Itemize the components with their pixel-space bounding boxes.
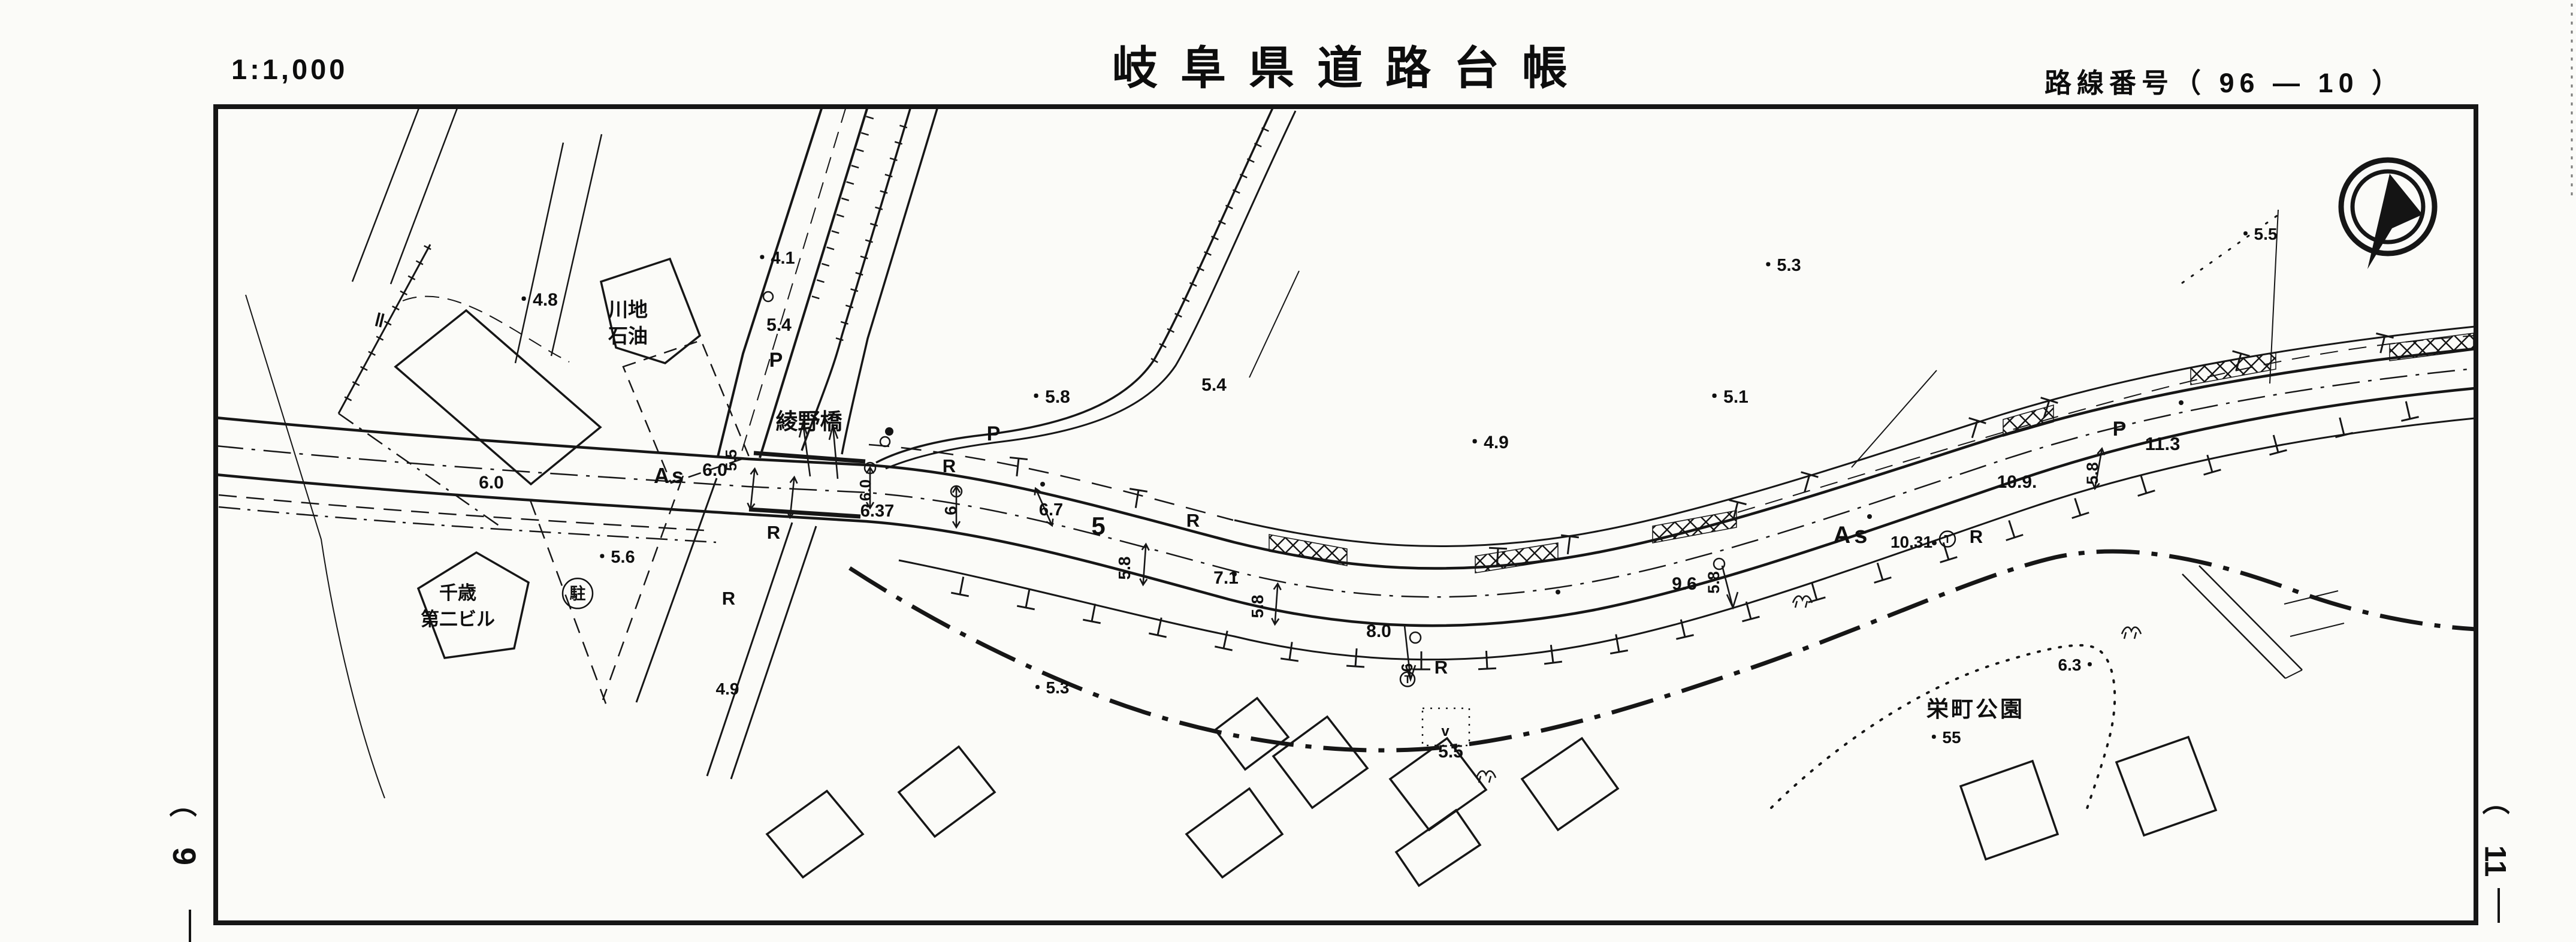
main-road [216, 327, 2475, 660]
map-label: R [1186, 510, 1200, 531]
map-label: P [987, 422, 1001, 445]
map-label: 5.5 [1438, 742, 1463, 762]
map-label: 7.1 [1213, 568, 1239, 588]
map-label: 5.8 [1115, 557, 1134, 580]
map-label: As [1833, 522, 1871, 548]
map-label: R [943, 455, 956, 476]
map-label: ・5.5 [2237, 225, 2278, 243]
map-label: 6.37 [860, 502, 894, 521]
map-label: ・5.6 [593, 548, 635, 567]
map-label: 石油 [608, 325, 648, 347]
map-label: 10.31 [1891, 533, 1932, 551]
map-label: P [2113, 418, 2127, 440]
map-label: 5.4 [1201, 375, 1227, 395]
map-label: 5.4 [766, 315, 792, 335]
map-labels-layer: ・4.8川地石油・4.15.4P綾野橋・5.85.4PR66.755.8R7.1… [373, 225, 2278, 762]
map-label: R [767, 522, 780, 543]
wall-hatch-bands [1269, 333, 2474, 573]
map-label: 第二ビル [421, 609, 495, 630]
boundaries [850, 551, 2476, 810]
map-label: ・5.1 [1705, 387, 1748, 407]
map-label: 6.0 [479, 473, 504, 493]
map-label: 駐 [570, 585, 586, 603]
map-label: 6.3・ [2058, 656, 2098, 674]
map-label: 5.5 [722, 449, 740, 471]
map-label: R [722, 588, 735, 609]
map-label: 千歳 [439, 582, 476, 603]
map-frame [216, 107, 2476, 923]
map-label: As [654, 463, 686, 488]
map-label: ・5.3 [1029, 678, 1070, 697]
map-label: 6.0 [856, 479, 874, 501]
map-label: ・5.8 [1027, 387, 1070, 407]
map-label: 6 [1398, 663, 1416, 672]
map-label: 10.9. [1997, 472, 2037, 492]
map-label: 6 [941, 506, 960, 515]
map-label: ・4.8 [515, 290, 558, 310]
map-label: P [769, 349, 783, 372]
map-label: 5.8 [1705, 571, 1723, 594]
map-label: 6.7 [1039, 500, 1063, 520]
map-label: T [1405, 674, 1411, 686]
map-label: 9.6 [1672, 574, 1697, 594]
map-label: v [1441, 723, 1449, 739]
map-label: ・4.9 [1466, 433, 1509, 452]
map-label: 5.8 [2083, 462, 2101, 485]
road-ledger-sheet: 1:1,000 岐阜県道路台帳 路線番号（ 96 — 10 ） （ 9 （ 11 [0, 0, 2576, 942]
river-and-channels [707, 107, 1295, 779]
north-arrow-icon [2341, 160, 2435, 269]
map-label: ・5.3 [1759, 256, 1801, 275]
map-label: 綾野橋 [776, 409, 843, 434]
map-label: 4.9 [716, 680, 739, 698]
map-label: 5.8 [1248, 595, 1267, 618]
map-canvas: ・4.8川地石油・4.15.4P綾野橋・5.85.4PR66.755.8R7.1… [0, 0, 2576, 942]
map-label: R [1970, 526, 1983, 547]
map-label: ・4.1 [753, 249, 795, 268]
buildings [395, 259, 2216, 886]
map-label: ・55 [1925, 728, 1961, 747]
map-label: T [1944, 533, 1951, 545]
map-label: R [1435, 657, 1448, 678]
map-label: 5 [1091, 512, 1105, 540]
map-label: 11.3 [2145, 433, 2181, 454]
map-label: 川地 [608, 298, 648, 321]
map-label: 栄町公園 [1926, 697, 2025, 721]
east-lot-lines [1852, 210, 2344, 678]
map-label: 8.0 [1366, 621, 1391, 641]
